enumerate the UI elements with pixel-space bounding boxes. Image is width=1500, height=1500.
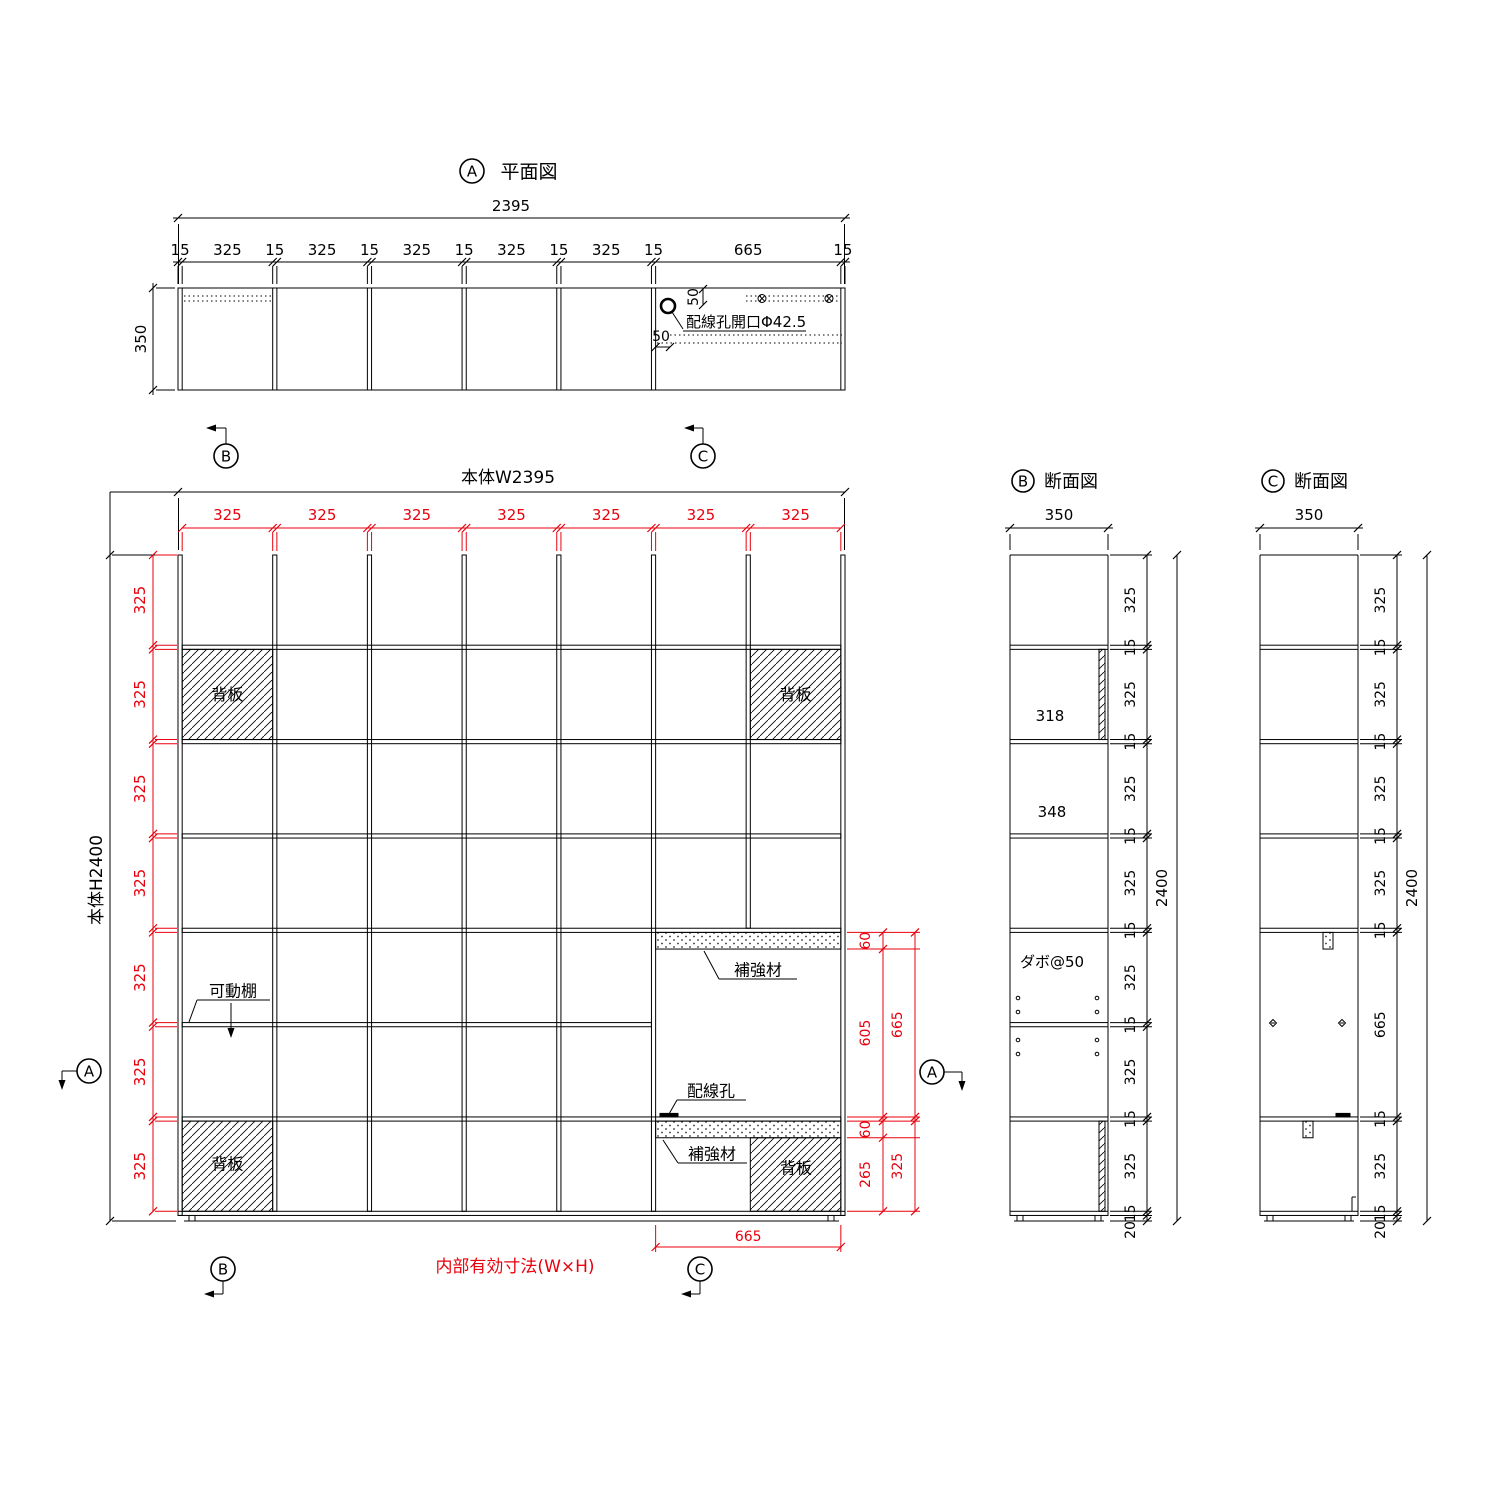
section-dim: 665 [1373, 1011, 1389, 1038]
plan-hole-offset: 50 [652, 329, 670, 345]
section-b-title-marker: B [1018, 473, 1028, 491]
rect [656, 1121, 841, 1138]
plan-subdim: 15 [549, 241, 568, 259]
plan-title: 平面図 [500, 161, 557, 183]
cad-drawing-page: 239515325153251532515325153251566515350配… [0, 0, 1500, 1500]
opening-dim: 60 [858, 1120, 874, 1138]
plan-hole-offset: 50 [686, 288, 702, 306]
section-dim: 15 [1373, 733, 1389, 751]
plan-subdim: 325 [213, 241, 242, 259]
section-dim: 325 [1373, 775, 1389, 802]
wiring-hole-label: 配線孔 [687, 1082, 735, 1101]
elevation-top-dim: 325 [402, 506, 431, 524]
rect [656, 932, 841, 949]
section-dim: 15 [1123, 638, 1139, 656]
elevation-left-dim: 325 [131, 869, 149, 898]
opening-dim: 665 [735, 1229, 762, 1245]
section-dim: 20 [1373, 1221, 1389, 1239]
section-dim: 15 [1373, 921, 1389, 939]
reinforcement-label: 補強材 [734, 961, 782, 980]
section-dim: 325 [1123, 870, 1139, 897]
section-dim: 325 [1123, 1059, 1139, 1086]
elevation-top-dim: 325 [687, 506, 716, 524]
section-dim: 15 [1373, 1204, 1389, 1222]
plan-subdim: 15 [360, 241, 379, 259]
elevation-width-label: 本体W2395 [461, 468, 555, 488]
section-dim: 15 [1123, 733, 1139, 751]
section-depth-dim: 350 [1045, 506, 1074, 524]
opening-dim: 325 [890, 1153, 906, 1180]
section-height-dim: 2400 [1403, 869, 1421, 907]
section-dim: 15 [1373, 1110, 1389, 1128]
section-dim: 325 [1123, 587, 1139, 614]
section-dim: 20 [1123, 1221, 1139, 1239]
elevation-left-dim: 325 [131, 963, 149, 992]
elevation-top-dim: 325 [592, 506, 621, 524]
section-dim: 325 [1123, 1153, 1139, 1180]
internal-dims-note: 内部有効寸法(W×H) [435, 1257, 594, 1277]
rect [1323, 932, 1333, 949]
plan-subdim: 665 [734, 241, 763, 259]
section-c-title: 断面図 [1294, 472, 1348, 493]
section-dim: 325 [1123, 775, 1139, 802]
plan-subdim: 15 [833, 241, 852, 259]
plan-wiring-hole-label: 配線孔開口Φ42.5 [686, 313, 806, 331]
cut-marker-c: C [698, 448, 708, 466]
elevation-height-label: 本体H2400 [87, 835, 107, 925]
plan-subdim: 325 [402, 241, 431, 259]
movable-shelf-label: 可動棚 [209, 982, 257, 1001]
opening-dim: 265 [858, 1161, 874, 1188]
section-dim: 325 [1373, 681, 1389, 708]
elevation-top-dim: 325 [213, 506, 242, 524]
section-c-title-marker: C [1268, 473, 1278, 491]
plan-subdim: 325 [308, 241, 337, 259]
elevation-left-dim: 325 [131, 680, 149, 709]
opening-dim: 60 [858, 932, 874, 950]
plan-subdim: 15 [265, 241, 284, 259]
opening-dim: 605 [858, 1020, 874, 1047]
rect [1099, 1121, 1105, 1211]
section-dim: 15 [1123, 1016, 1139, 1034]
section-dim: 325 [1373, 1153, 1389, 1180]
cad-canvas: 239515325153251532515325153251566515350配… [0, 0, 1500, 1500]
back-panel-label: 背板 [780, 685, 812, 704]
rect [1099, 649, 1105, 739]
elevation-top-dim: 325 [781, 506, 810, 524]
cut-marker-b: B [221, 448, 231, 466]
section-dim: 15 [1123, 1204, 1139, 1222]
section-dim: 15 [1123, 1110, 1139, 1128]
back-panel-label: 背板 [211, 1155, 243, 1174]
elevation-top-dim: 325 [308, 506, 337, 524]
reinforcement-label: 補強材 [688, 1145, 736, 1164]
section-dim: 325 [1373, 587, 1389, 614]
back-panel-label: 背板 [780, 1159, 812, 1178]
plan-subdim: 15 [644, 241, 663, 259]
elevation-left-dim: 325 [131, 1152, 149, 1181]
section-dim: 325 [1123, 681, 1139, 708]
back-panel-label: 背板 [211, 685, 243, 704]
rect [1303, 1121, 1313, 1138]
section-b-title: 断面図 [1044, 472, 1098, 493]
plan-subdim: 325 [592, 241, 621, 259]
elevation-top-dim: 325 [497, 506, 526, 524]
section-dim: 15 [1123, 921, 1139, 939]
cut-marker-b: B [218, 1261, 228, 1279]
section-dim: 325 [1373, 870, 1389, 897]
plan-depth: 350 [132, 325, 150, 354]
cut-marker-a: A [927, 1064, 938, 1082]
cell-depth-label: 318 [1036, 707, 1065, 725]
elevation-left-dim: 325 [131, 1058, 149, 1087]
rect [1336, 1113, 1350, 1117]
dowel-pitch-label: ダボ@50 [1020, 953, 1084, 971]
section-dim: 15 [1123, 827, 1139, 845]
section-depth-dim: 350 [1295, 506, 1324, 524]
section-dim: 15 [1373, 638, 1389, 656]
plan-subdim: 325 [497, 241, 526, 259]
plan-subdim: 15 [455, 241, 474, 259]
cut-marker-c: C [695, 1261, 705, 1279]
elevation-left-dim: 325 [131, 774, 149, 803]
plan-title-marker: A [467, 163, 478, 181]
section-height-dim: 2400 [1153, 869, 1171, 907]
plan-subdim: 15 [171, 241, 190, 259]
elevation-left-dim: 325 [131, 586, 149, 615]
section-dim: 15 [1373, 827, 1389, 845]
cell-depth-label: 348 [1038, 803, 1067, 821]
plan-overall-width: 2395 [492, 197, 530, 215]
cut-marker-a: A [84, 1063, 95, 1081]
opening-dim: 665 [890, 1011, 906, 1038]
section-dim: 325 [1123, 964, 1139, 991]
